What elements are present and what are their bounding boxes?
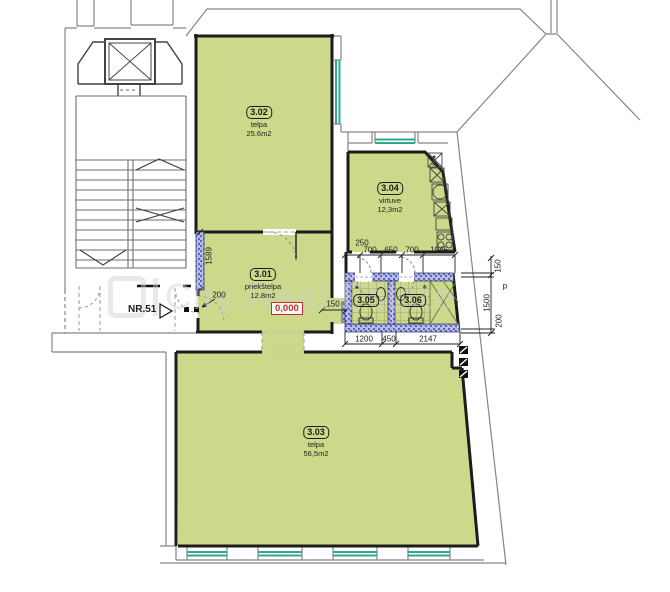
room-id: 3.06 <box>400 294 426 307</box>
level-marker: 0,000 <box>271 302 303 315</box>
room-label-3-02: 3.02 telpa 25.6m2 <box>246 106 272 138</box>
dim-700b: 700 <box>405 246 418 255</box>
room-id: 3.05 <box>353 294 379 307</box>
room-name: virtuve <box>377 196 403 205</box>
dim-p: p <box>503 282 507 291</box>
room-area: 12.8m2 <box>245 291 281 300</box>
dim-1045: 1045 <box>430 246 448 255</box>
room-area: 25.6m2 <box>246 129 272 138</box>
entrance-arrow-icon <box>160 304 172 318</box>
dim-1589: 1589 <box>205 247 214 265</box>
room-label-3-06: 3.06 <box>400 294 426 307</box>
room-name: telpa <box>303 440 329 449</box>
dim-200-right: 200 <box>495 314 504 327</box>
switch-symbols <box>459 346 468 378</box>
dim-2147: 2147 <box>419 335 437 344</box>
room-id: 3.01 <box>250 268 276 281</box>
room-id: 3.04 <box>377 182 403 195</box>
staircase <box>76 96 186 268</box>
dim-700a: 700 <box>363 246 376 255</box>
dim-150-passage: 150 <box>326 300 339 309</box>
room-name: telpa <box>246 120 272 129</box>
room-id: 3.03 <box>303 426 329 439</box>
room-id: 3.02 <box>246 106 272 119</box>
room-label-3-03: 3.03 telpa 56,5m2 <box>303 426 329 458</box>
room-area: 12,3m2 <box>377 205 403 214</box>
dim-1500-right: 1500 <box>483 294 492 312</box>
entrance-label: NR.51 <box>128 304 156 315</box>
room-name: priekštelpa <box>245 282 281 291</box>
elevator-shaft <box>78 39 182 96</box>
dim-650: 650 <box>384 246 397 255</box>
room-label-3-04: 3.04 virtuve 12,3m2 <box>377 182 403 214</box>
room-label-3-05: 3.05 <box>353 294 379 307</box>
room-area: 56,5m2 <box>303 449 329 458</box>
floorplan-drawing <box>0 0 670 592</box>
dim-450: 450 <box>382 335 395 344</box>
dim-200-entry: 200 <box>212 291 225 300</box>
floorplan-page: City Real Estate 3.02 telpa 25.6m2 3.01 … <box>0 0 670 592</box>
dim-1200: 1200 <box>355 335 373 344</box>
room-label-3-01: 3.01 priekštelpa 12.8m2 <box>245 268 281 300</box>
dim-150-right: 150 <box>494 259 503 272</box>
